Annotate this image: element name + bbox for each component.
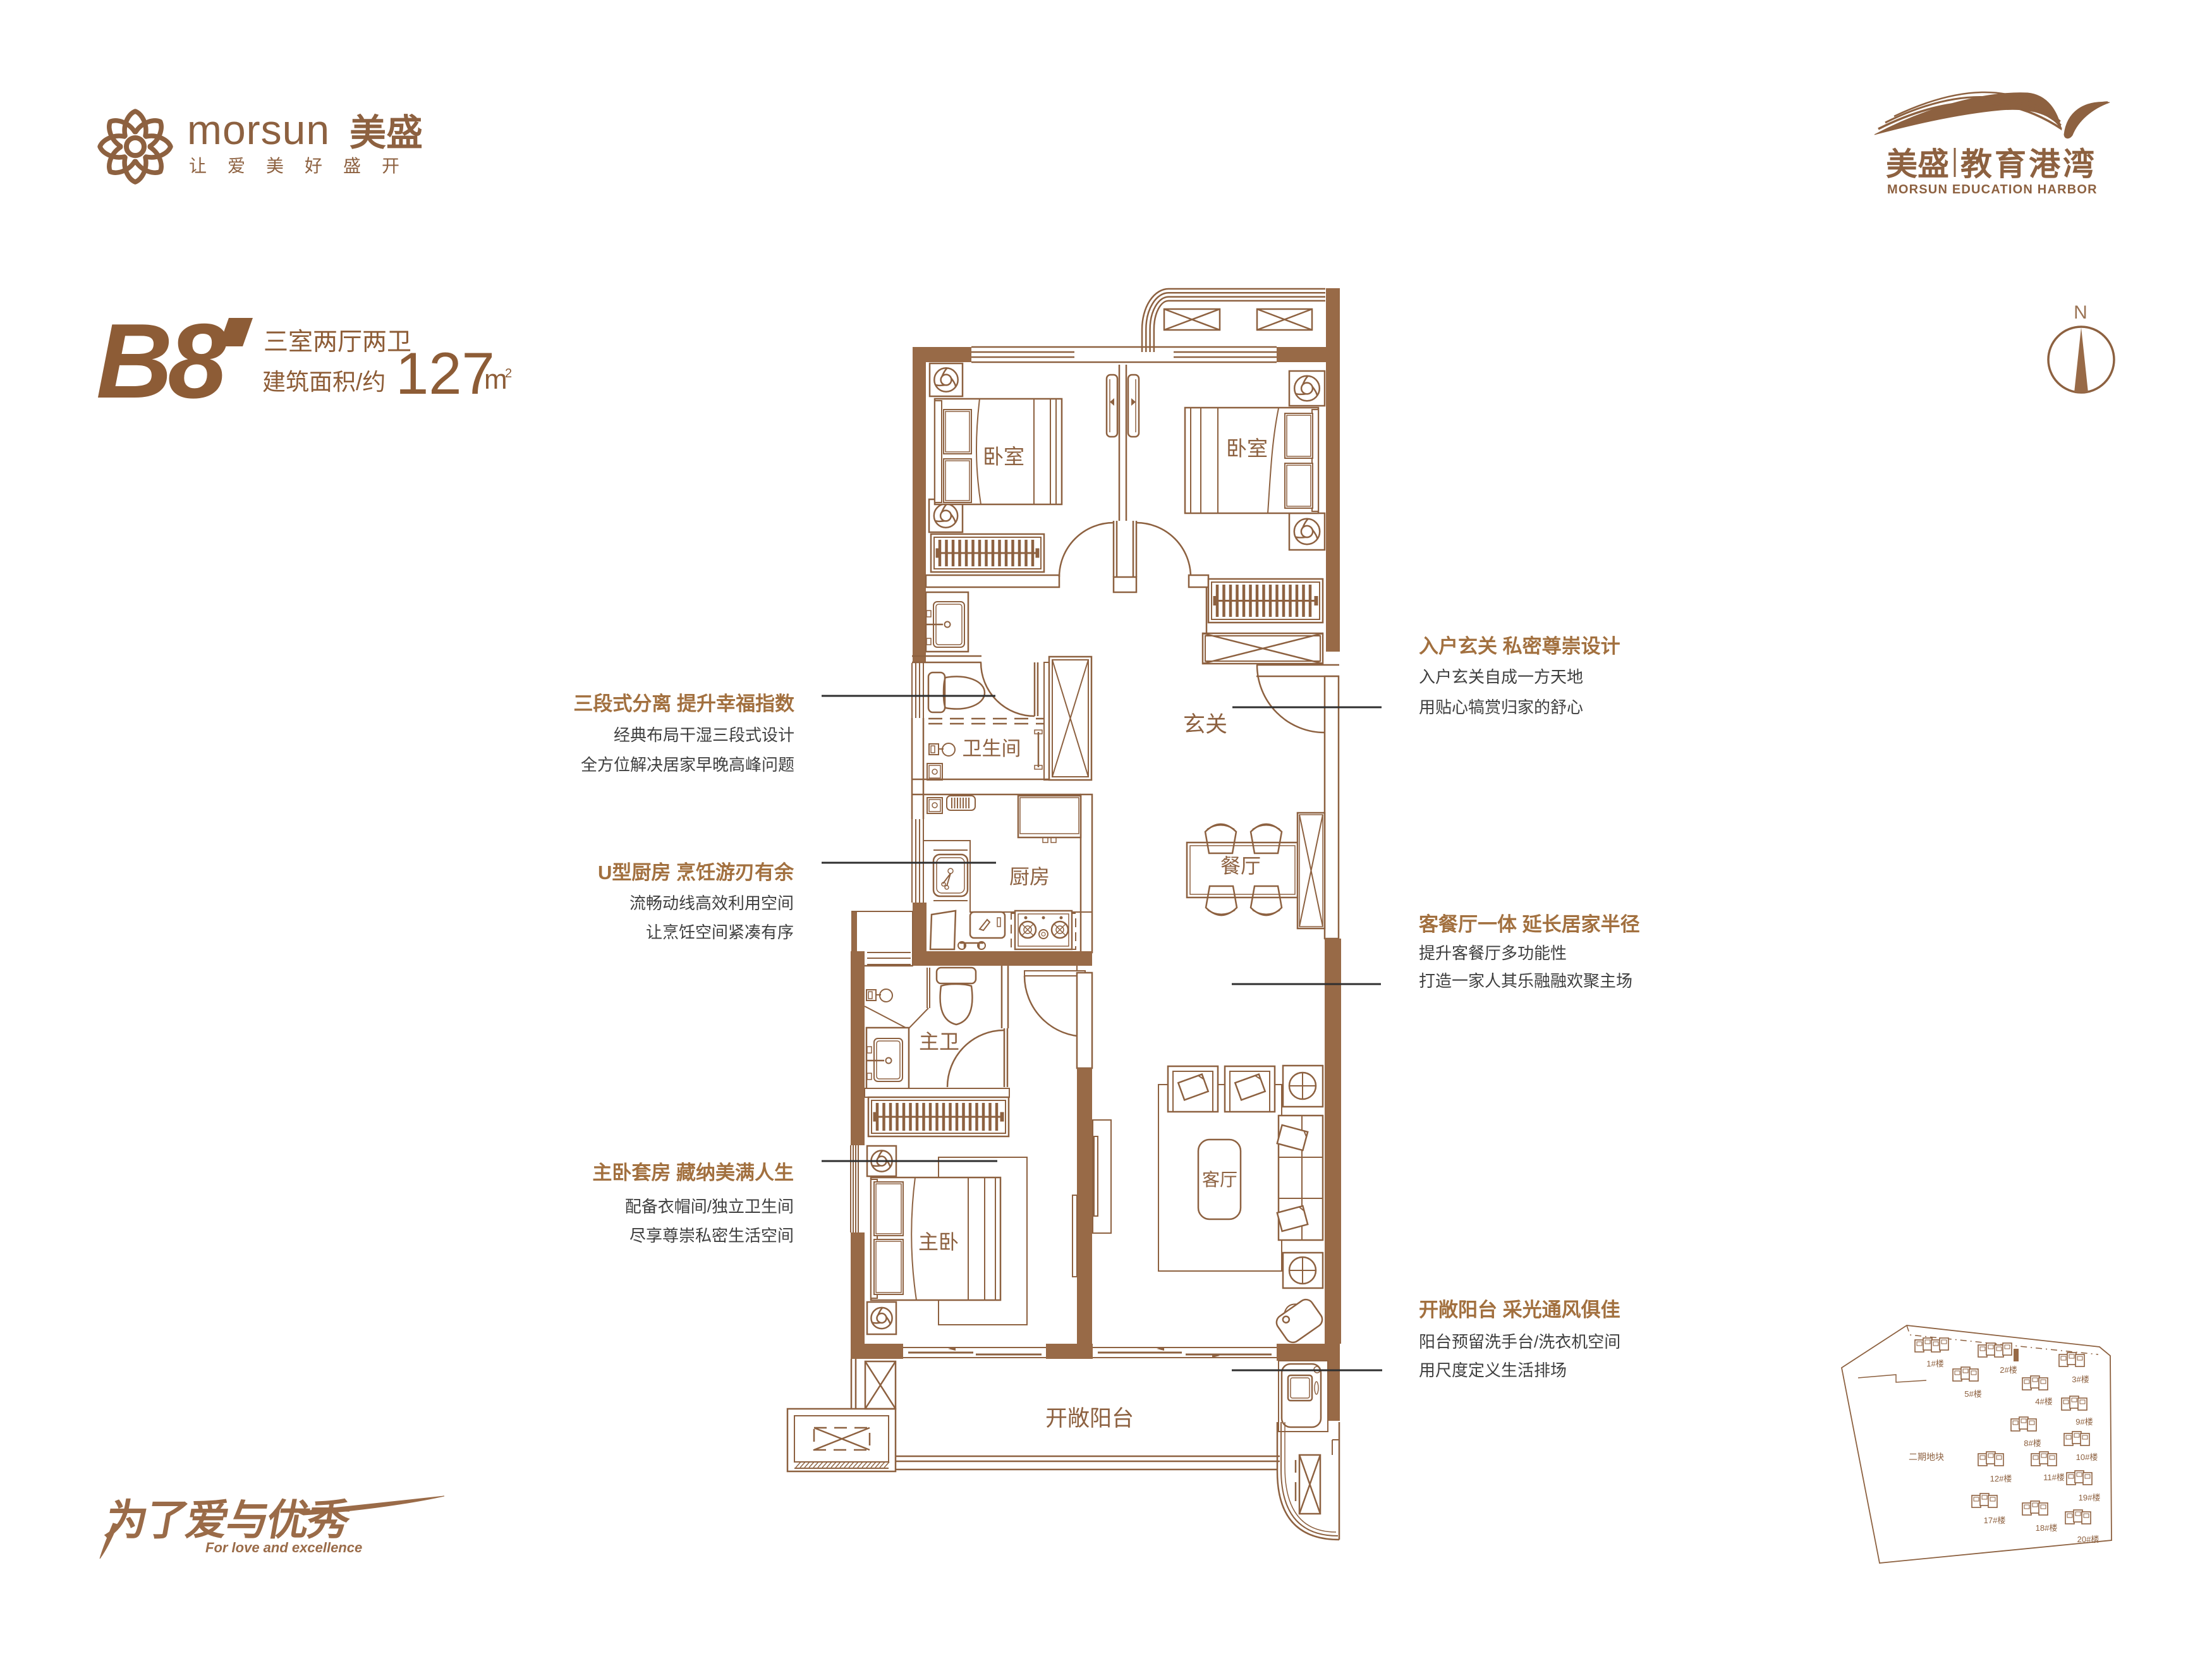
svg-text:4#楼: 4#楼 <box>2035 1397 2052 1406</box>
svg-text:U型厨房 烹饪游刃有余: U型厨房 烹饪游刃有余 <box>598 861 794 884</box>
svg-text:主卧: 主卧 <box>918 1231 959 1253</box>
svg-text:For love and excellence: For love and excellence <box>205 1540 362 1555</box>
svg-text:11#楼: 11#楼 <box>2043 1473 2065 1482</box>
svg-text:用贴心犒赏归家的舒心: 用贴心犒赏归家的舒心 <box>1419 698 1583 717</box>
svg-text:餐厅: 餐厅 <box>1220 855 1261 877</box>
svg-text:8#楼: 8#楼 <box>2024 1439 2041 1448</box>
svg-text:厨房: 厨房 <box>1009 865 1050 888</box>
svg-text:美盛: 美盛 <box>349 113 423 154</box>
svg-text:主卫: 主卫 <box>919 1030 959 1053</box>
svg-text:19#楼: 19#楼 <box>2079 1493 2101 1502</box>
svg-text:三段式分离 提升幸福指数: 三段式分离 提升幸福指数 <box>573 693 794 715</box>
svg-text:入户玄关 私密尊崇设计: 入户玄关 私密尊崇设计 <box>1419 635 1620 657</box>
svg-text:让爱美好盛开: 让爱美好盛开 <box>189 156 420 176</box>
svg-text:20#楼: 20#楼 <box>2077 1535 2100 1544</box>
svg-text:入户玄关自成一方天地: 入户玄关自成一方天地 <box>1419 667 1583 686</box>
svg-text:打造一家人其乐融融欢聚主场: 打造一家人其乐融融欢聚主场 <box>1419 971 1632 990</box>
svg-text:流畅动线高效利用空间: 流畅动线高效利用空间 <box>629 894 794 913</box>
svg-text:卧室: 卧室 <box>983 445 1024 468</box>
svg-text:morsun: morsun <box>187 106 330 153</box>
svg-text:主卧套房 藏纳美满人生: 主卧套房 藏纳美满人生 <box>592 1162 794 1184</box>
svg-text:2#楼: 2#楼 <box>2000 1365 2017 1375</box>
svg-text:MORSUN EDUCATION HARBOR: MORSUN EDUCATION HARBOR <box>1887 183 2098 197</box>
svg-text:建筑面积/约: 建筑面积/约 <box>262 369 386 395</box>
svg-text:1#楼: 1#楼 <box>1926 1359 1943 1368</box>
svg-text:提升客餐厅多功能性: 提升客餐厅多功能性 <box>1419 944 1567 963</box>
svg-text:N: N <box>2074 302 2087 323</box>
svg-text:B8: B8 <box>96 301 227 420</box>
svg-text:5#楼: 5#楼 <box>1964 1389 1981 1399</box>
svg-text:三室两厅两卫: 三室两厅两卫 <box>264 329 411 356</box>
svg-text:为了爱与优秀: 为了爱与优秀 <box>101 1497 355 1543</box>
svg-text:配备衣帽间/独立卫生间: 配备衣帽间/独立卫生间 <box>625 1197 794 1216</box>
svg-text:美盛: 美盛 <box>1886 147 1949 182</box>
svg-text:用尺度定义生活排场: 用尺度定义生活排场 <box>1419 1361 1567 1380</box>
svg-text:玄关: 玄关 <box>1183 712 1227 737</box>
svg-text:让烹饪空间紧凑有序: 让烹饪空间紧凑有序 <box>646 923 794 942</box>
svg-text:m: m <box>484 364 507 395</box>
svg-text:开敞阳台: 开敞阳台 <box>1045 1406 1134 1431</box>
svg-text:二期地块: 二期地块 <box>1909 1452 1944 1462</box>
svg-text:开敞阳台 采光通风俱佳: 开敞阳台 采光通风俱佳 <box>1419 1299 1620 1321</box>
svg-text:9#楼: 9#楼 <box>2075 1417 2093 1427</box>
svg-text:经典布局干湿三段式设计: 经典布局干湿三段式设计 <box>614 726 794 745</box>
svg-text:全方位解决居家早晚高峰问题: 全方位解决居家早晚高峰问题 <box>581 755 794 774</box>
svg-text:教育港湾: 教育港湾 <box>1960 147 2097 182</box>
svg-text:卫生间: 卫生间 <box>963 738 1021 760</box>
svg-text:127: 127 <box>396 340 495 406</box>
svg-text:卧室: 卧室 <box>1226 437 1268 460</box>
svg-text:阳台预留洗手台/洗衣机空间: 阳台预留洗手台/洗衣机空间 <box>1419 1332 1620 1351</box>
svg-text:12#楼: 12#楼 <box>1990 1474 2012 1483</box>
svg-text:17#楼: 17#楼 <box>1984 1516 2006 1525</box>
svg-text:尽享尊崇私密生活空间: 尽享尊崇私密生活空间 <box>629 1226 794 1245</box>
svg-text:2: 2 <box>505 367 512 380</box>
svg-text:10#楼: 10#楼 <box>2076 1452 2098 1462</box>
svg-text:客餐厅一体 延长居家半径: 客餐厅一体 延长居家半径 <box>1419 913 1640 935</box>
svg-text:客厅: 客厅 <box>1202 1170 1237 1189</box>
svg-text:3#楼: 3#楼 <box>2072 1375 2089 1384</box>
svg-text:18#楼: 18#楼 <box>2036 1523 2058 1533</box>
